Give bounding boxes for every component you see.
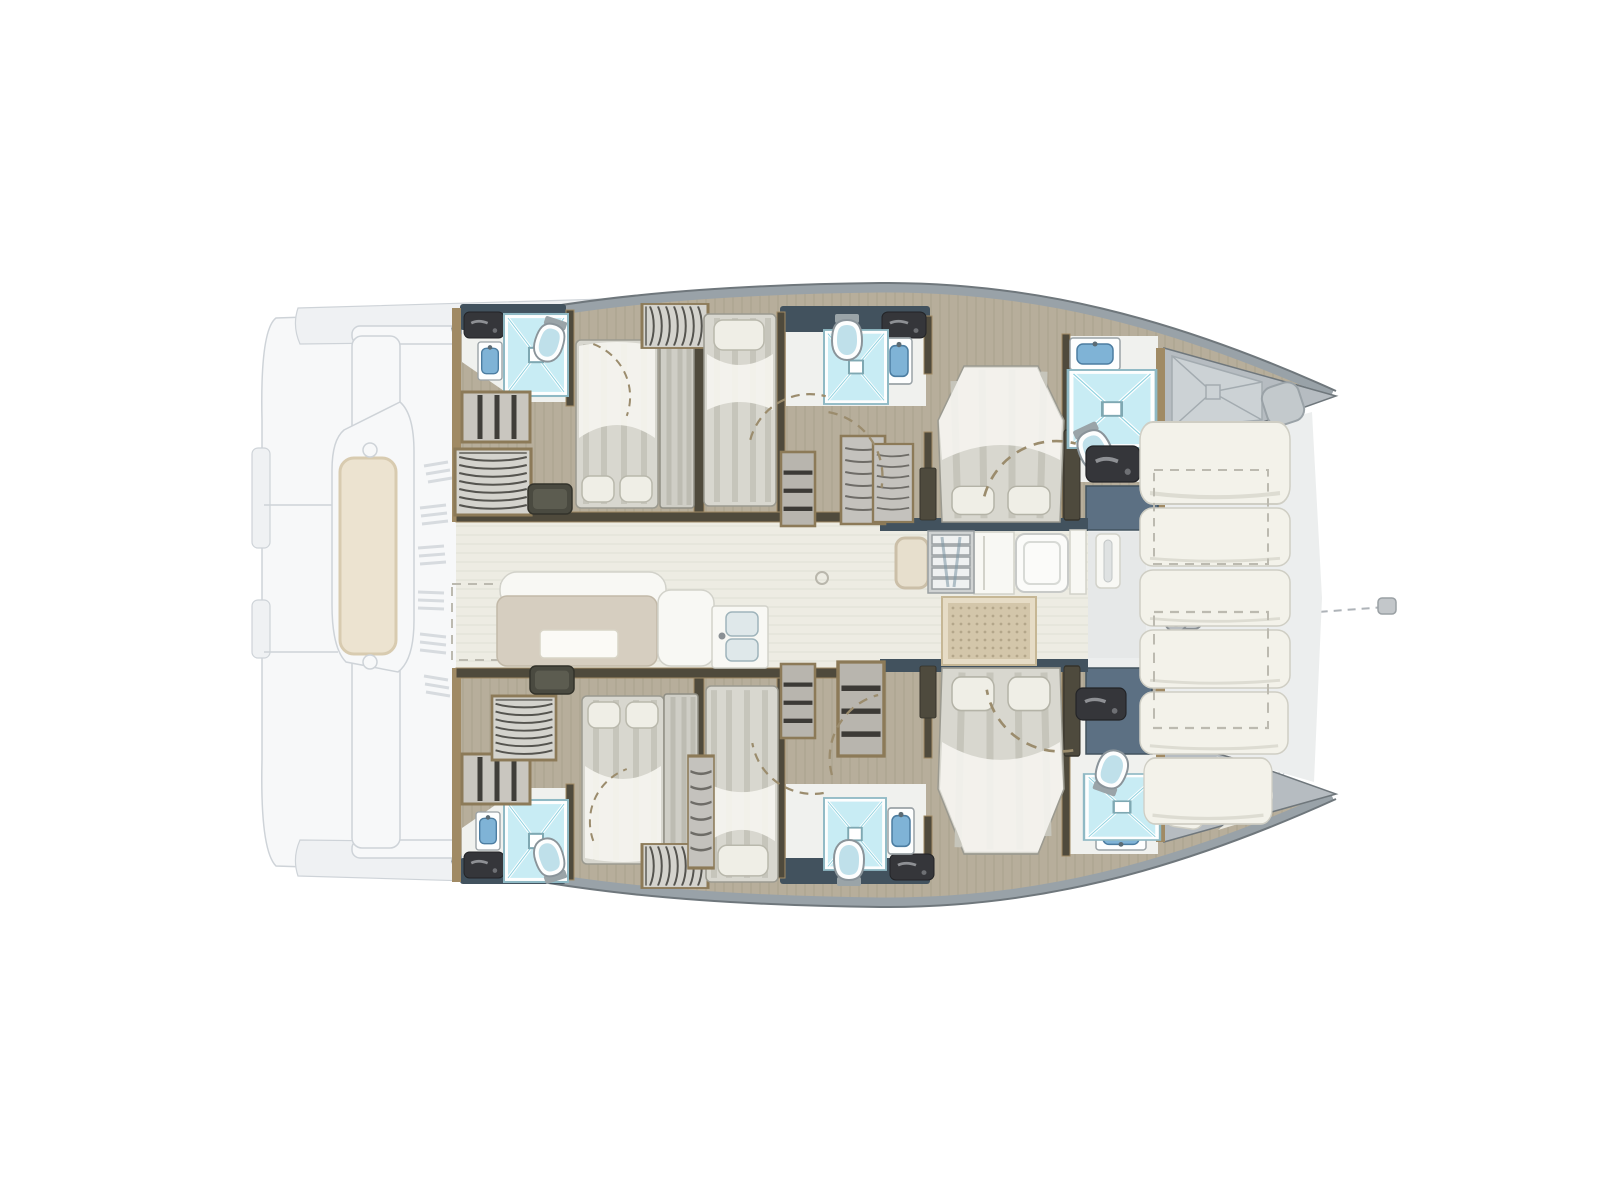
single-bed-port bbox=[706, 686, 778, 882]
shelves-port-aft bbox=[462, 754, 530, 804]
washbasin-port-mid bbox=[888, 808, 914, 854]
saloon bbox=[452, 512, 1146, 678]
single-bed-starboard bbox=[704, 314, 776, 506]
nav-seat bbox=[896, 538, 928, 588]
amenity-shelf-port-aft bbox=[464, 852, 504, 878]
foredeck-cushion-6 bbox=[1144, 758, 1272, 824]
island-bed-starboard-forward bbox=[938, 366, 1064, 522]
shelves-starboard-aft bbox=[462, 392, 530, 442]
open-shelves-port-fore bbox=[838, 662, 884, 756]
companionway-steps bbox=[928, 531, 974, 593]
amenity-starboard-forward bbox=[1086, 446, 1140, 482]
wardrobe-port-aft bbox=[492, 696, 556, 760]
foredeck-cushion-5 bbox=[1140, 692, 1288, 754]
washbasin-starboard-aft bbox=[478, 342, 502, 380]
berth-bench-starboard-aft bbox=[660, 342, 694, 508]
hanging-locker-starboard-mid bbox=[642, 304, 708, 348]
washbasin-starboard-mid bbox=[886, 338, 912, 384]
washbasin-starboard-forward bbox=[1070, 338, 1120, 370]
transom-step-lower bbox=[252, 600, 270, 658]
toilet-port-mid bbox=[834, 840, 864, 886]
amenity-shelf-port-mid bbox=[890, 854, 934, 880]
forward-cabinet bbox=[1070, 530, 1086, 594]
shelf-column-port bbox=[781, 664, 815, 738]
ottoman-port-aft bbox=[530, 666, 574, 694]
tender-sunpad bbox=[340, 458, 396, 654]
chaise-seat bbox=[658, 590, 714, 666]
foredeck-cushion-4 bbox=[1140, 630, 1290, 688]
galley-sink-a bbox=[726, 612, 758, 636]
double-bed-port-aft bbox=[582, 696, 664, 864]
saloon-table bbox=[540, 630, 618, 658]
nightstand-port-a bbox=[920, 666, 936, 718]
forward-counter bbox=[974, 532, 1014, 594]
bow-roller bbox=[1378, 598, 1396, 614]
locker-port-corridor bbox=[688, 756, 714, 868]
saloon-doormat bbox=[942, 597, 1036, 665]
ottoman-starboard-aft bbox=[528, 484, 572, 514]
catamaran-floor-plan: Catamaran interior layout floor plan (to… bbox=[0, 0, 1600, 1200]
transom-step-upper bbox=[252, 448, 270, 548]
amenity-shelf-starboard-aft bbox=[464, 312, 504, 338]
washbasin-port-aft bbox=[476, 812, 500, 850]
island-bed-port-forward bbox=[938, 668, 1064, 854]
nightstand-starboard-a bbox=[920, 468, 936, 520]
toilet-starboard-mid bbox=[832, 314, 862, 360]
galley-sink-b bbox=[726, 639, 758, 661]
galley-faucet bbox=[719, 633, 726, 640]
wardrobe-starboard-aft bbox=[455, 449, 531, 515]
amenity-port-forward bbox=[1076, 688, 1126, 720]
shelf-column-starboard bbox=[781, 452, 815, 526]
foredeck-cushion-1 bbox=[1140, 422, 1290, 504]
double-bed-starboard-aft bbox=[576, 340, 658, 508]
